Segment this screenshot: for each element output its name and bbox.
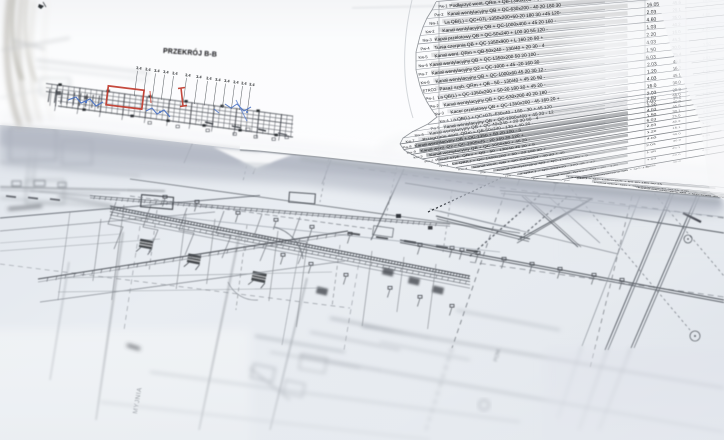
svg-text:Pw-4: Pw-4 — [420, 45, 430, 51]
svg-text:Kw-2: Kw-2 — [425, 29, 435, 35]
svg-text:Kw-5: Kw-5 — [418, 54, 428, 60]
svg-text:Nw-1: Nw-1 — [429, 20, 439, 26]
svg-text:Pw-2: Pw-2 — [434, 12, 444, 18]
svg-text:Nw-3: Nw-3 — [422, 37, 433, 43]
svg-text:Nw-6: Nw-6 — [418, 62, 429, 68]
svg-text:Pw-7: Pw-7 — [418, 71, 428, 77]
svg-text:Pw-1: Pw-1 — [438, 3, 448, 9]
svg-text:Kw-8: Kw-8 — [420, 79, 430, 85]
svg-text:3.1: 3.1 — [195, 118, 200, 123]
